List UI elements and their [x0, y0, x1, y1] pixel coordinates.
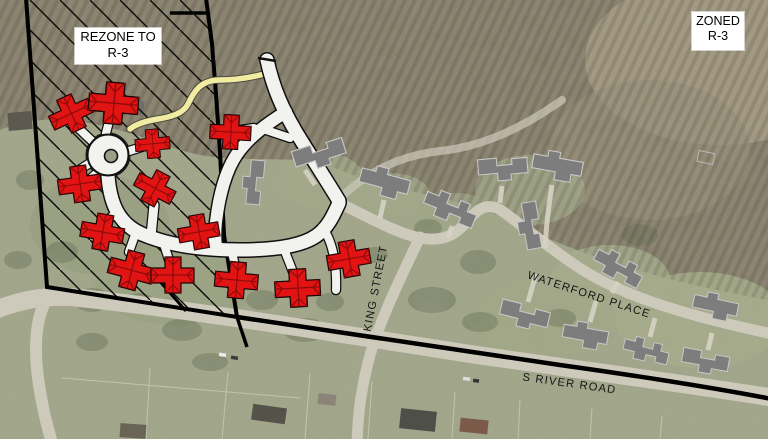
zoned-note-box: ZONED R-3 — [692, 12, 744, 50]
rezoning-map: KING STREET WATERFORD PLACE S RIVER ROAD… — [0, 0, 768, 439]
rezone-note-line2: R-3 — [75, 45, 161, 61]
zoned-note-line1: ZONED — [692, 14, 744, 29]
cul-de-sac — [88, 135, 129, 176]
rezone-note-box: REZONE TO R-3 — [75, 28, 161, 64]
zoned-note-line2: R-3 — [692, 29, 744, 44]
site-plan-map: KING STREET WATERFORD PLACE S RIVER ROAD — [0, 0, 768, 439]
cul-de-sac-island — [105, 150, 118, 163]
rezone-note-line1: REZONE TO — [75, 29, 161, 45]
